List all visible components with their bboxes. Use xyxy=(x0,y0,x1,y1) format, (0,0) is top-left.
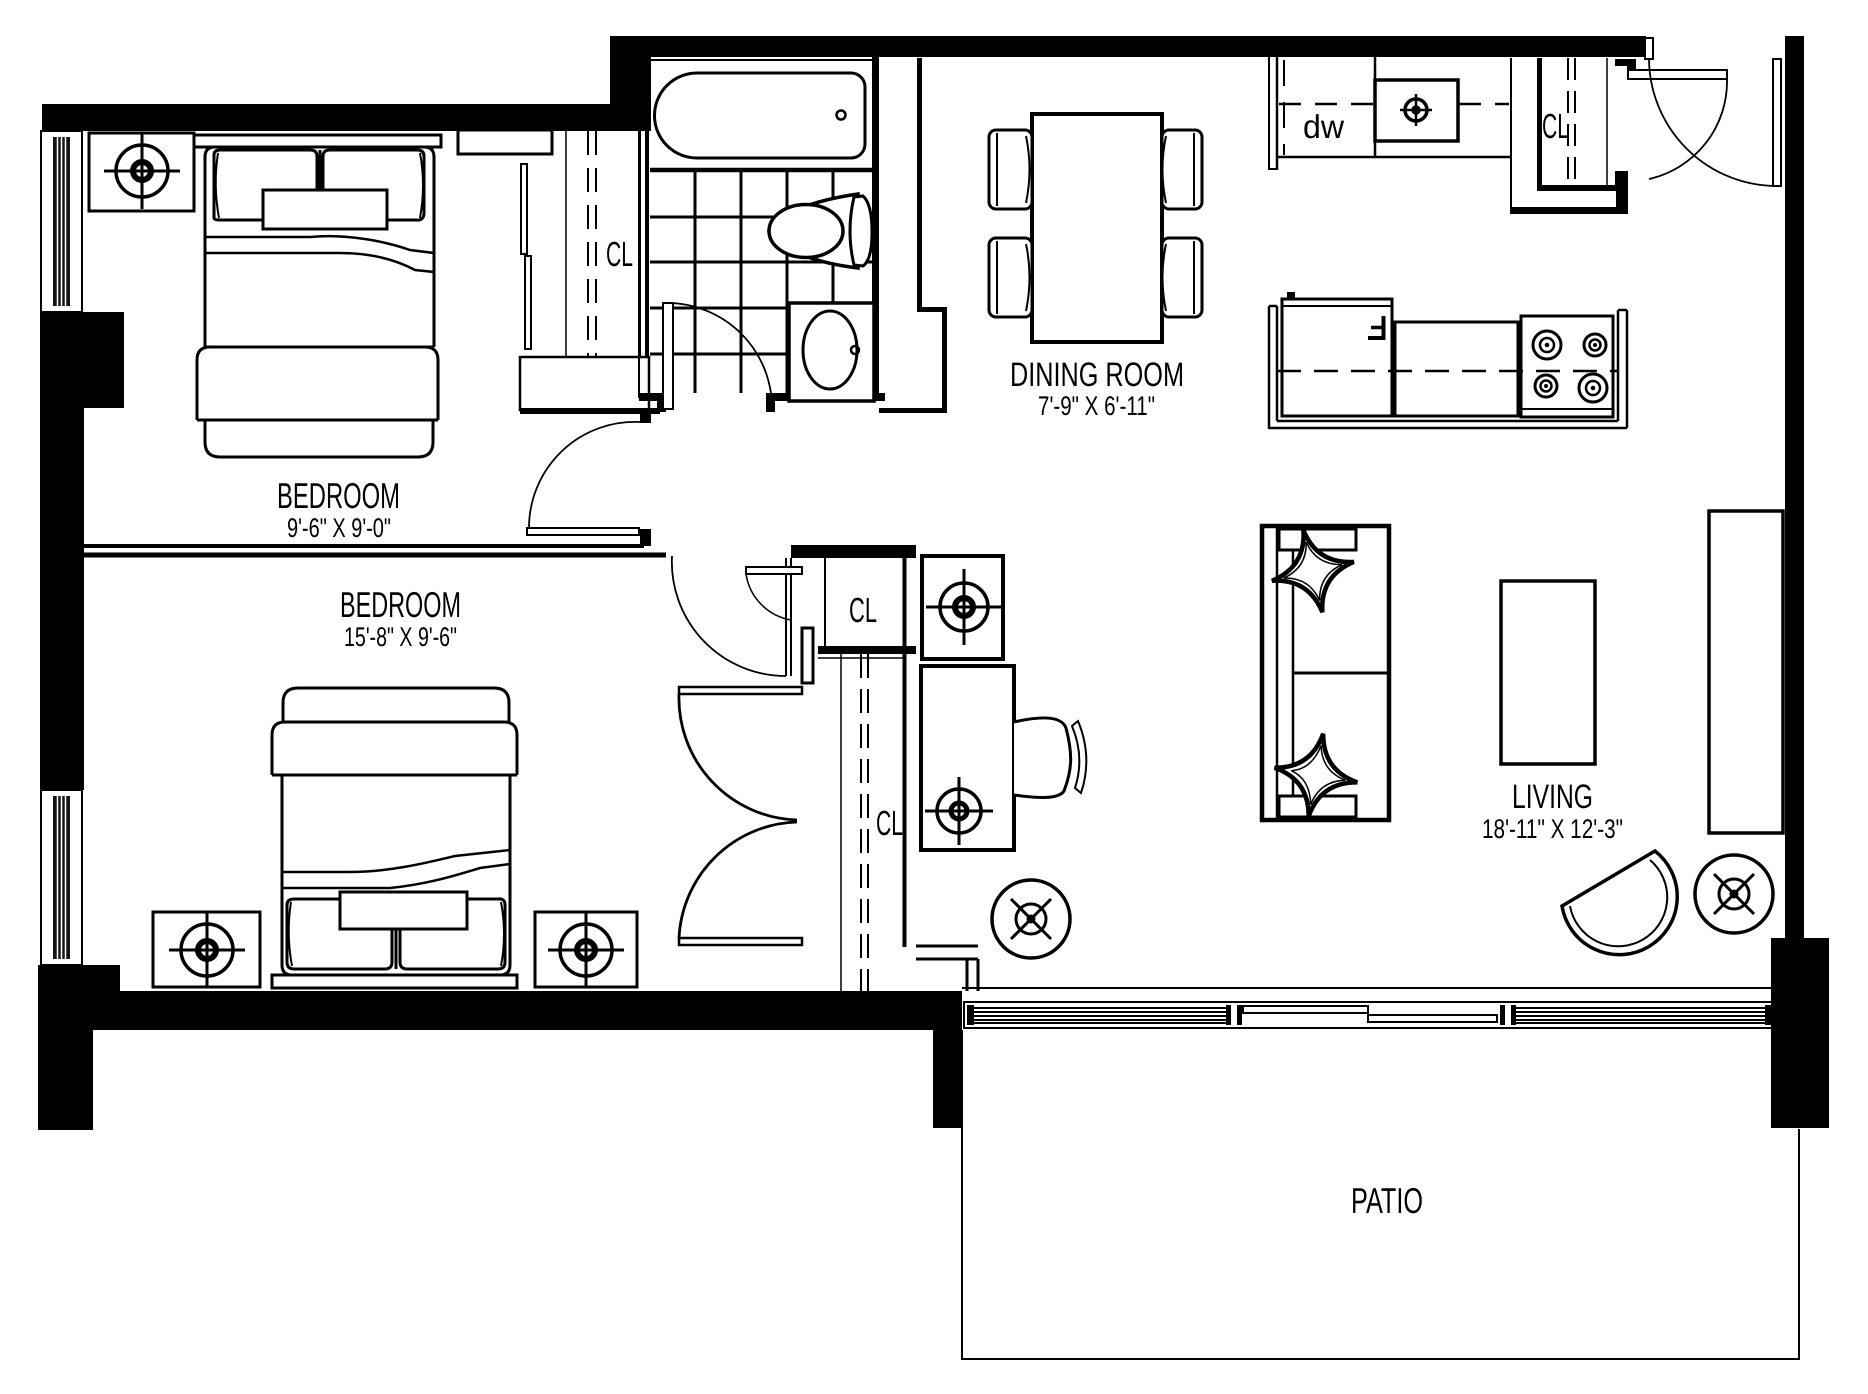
svg-text:BEDROOM: BEDROOM xyxy=(277,475,400,516)
svg-text:9'-6" X 9'-0": 9'-6" X 9'-0" xyxy=(287,513,391,543)
svg-text:BEDROOM: BEDROOM xyxy=(340,584,461,625)
svg-text:DINING ROOM: DINING ROOM xyxy=(1010,356,1184,394)
svg-text:CL: CL xyxy=(849,591,877,630)
svg-text:15'-8" X 9'-6": 15'-8" X 9'-6" xyxy=(344,622,457,652)
svg-text:dw: dw xyxy=(1303,108,1344,145)
svg-text:PATIO: PATIO xyxy=(1351,1180,1423,1221)
svg-text:CL: CL xyxy=(606,235,633,274)
svg-text:18'-11" X 12'-3": 18'-11" X 12'-3" xyxy=(1482,814,1623,844)
svg-text:CL: CL xyxy=(1542,107,1569,146)
svg-text:LIVING: LIVING xyxy=(1512,778,1593,816)
svg-text:7'-9" X 6'-11": 7'-9" X 6'-11" xyxy=(1038,391,1155,421)
svg-text:CL: CL xyxy=(876,804,903,843)
